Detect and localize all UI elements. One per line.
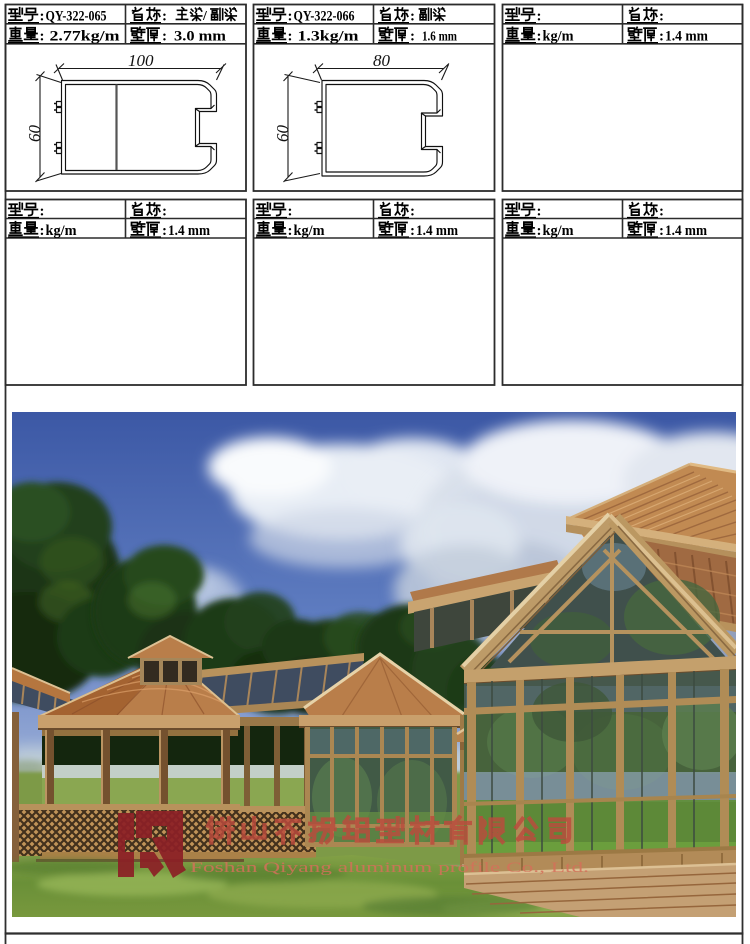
svg-text:1.4 mm: 1.4 mm [665,223,707,239]
svg-text::: : [537,203,542,219]
svg-text::: : [659,28,664,44]
svg-text:2.77kg/m: 2.77kg/m [50,28,121,44]
svg-text:kg/m: kg/m [294,223,325,239]
svg-text::: : [40,203,45,219]
svg-text::: : [659,8,664,24]
svg-text:1.6 mm: 1.6 mm [422,29,457,44]
svg-text::: : [410,203,415,219]
svg-text:kg/m: kg/m [46,223,77,239]
svg-text::: : [288,8,293,24]
svg-text:1.4 mm: 1.4 mm [416,223,458,239]
svg-text::: : [40,223,45,239]
svg-text:80: 80 [373,51,391,70]
svg-text::: : [288,223,293,239]
svg-text::: : [288,28,293,44]
svg-text:kg/m: kg/m [543,28,574,44]
svg-text::: : [162,223,167,239]
svg-text:Foshan Qiyang aluminum profile: Foshan Qiyang aluminum profile Co., Ltd. [190,860,589,876]
svg-text::: : [659,223,664,239]
svg-text:1.3kg/m: 1.3kg/m [298,28,360,44]
svg-text::: : [410,8,415,24]
svg-text:QY-322-066: QY-322-066 [294,8,355,24]
svg-text::: : [162,203,167,219]
svg-text::: : [40,28,45,44]
svg-text:60: 60 [25,125,44,143]
svg-text:1.4 mm: 1.4 mm [168,223,210,239]
svg-text::: : [537,28,542,44]
svg-text::: : [410,28,415,44]
svg-text::: : [410,223,415,239]
svg-text:60: 60 [273,125,292,143]
svg-text::: : [659,203,664,219]
svg-text::: : [537,8,542,24]
svg-text:3.0 mm: 3.0 mm [174,28,227,44]
svg-text:1.4 mm: 1.4 mm [665,28,708,44]
svg-text::: : [162,28,167,44]
svg-text::: : [162,8,167,24]
svg-text:100: 100 [128,51,154,70]
svg-text::: : [40,8,45,24]
svg-text::: : [537,223,542,239]
svg-text:kg/m: kg/m [543,223,574,239]
svg-text::: : [288,203,293,219]
svg-text:QY-322-065: QY-322-065 [46,8,107,24]
